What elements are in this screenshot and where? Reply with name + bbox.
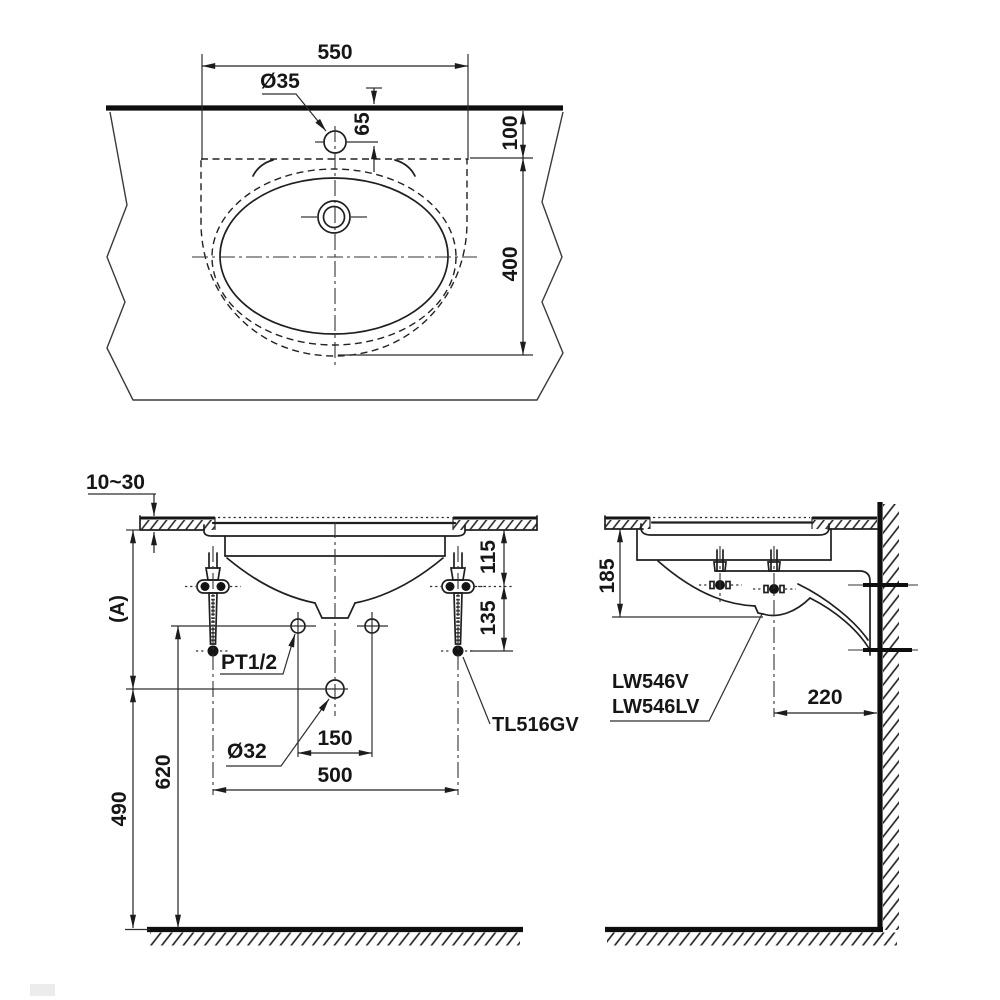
floor-hatch [607,933,897,946]
label-model-1: LW546V [612,671,689,693]
bracket-curve-bottom [810,598,870,650]
dim-400: 400 [499,246,522,281]
dim-counter-thickness: 10~30 [86,471,145,494]
left-overflow-notch [253,160,273,176]
label-model-2: LW546LV [612,696,700,718]
dim-500: 500 [317,764,352,787]
valve-port-left [446,582,455,591]
right-valve [430,546,486,795]
bowl-underside-rear [763,598,810,616]
drain-dip [755,606,763,614]
dim-115: 115 [477,540,500,574]
floor-hatch [150,933,520,946]
counter-hatch-right [812,520,877,529]
dim-A: (A) [107,595,129,623]
bowl-underside [658,561,755,606]
dim-550: 550 [317,41,352,64]
hanger-rail [716,571,870,655]
drain-inner-circle [324,207,345,228]
dim-620: 620 [152,754,175,789]
dim-490: 490 [108,791,131,826]
label-drain-dia: Ø32 [227,740,267,763]
label-supply-thread: PT1/2 [221,651,277,674]
counter-hatch-left [605,520,650,529]
right-overflow-notch [395,160,415,176]
dim-150: 150 [317,727,352,750]
wall-hatch [883,504,899,930]
valve-port-right [217,582,226,591]
front-view: 10~30 (A) 490 620 PT1/2 Ø32 150 500 115 … [86,471,579,946]
bowl-underside-right [355,558,443,603]
scan-artifact [30,984,55,996]
top-view: 550 Ø35 65 100 400 [106,41,563,400]
label-valve-model: TL516GV [492,714,579,736]
dim-220: 220 [807,686,842,709]
lavatory-installation-drawing: 550 Ø35 65 100 400 [0,0,1000,1000]
leader-faucet-dia [262,94,326,131]
valve-port-left [201,582,210,591]
dim-65: 65 [351,112,374,136]
drawing-page: 550 Ø35 65 100 400 [0,0,1000,1000]
valve-port-right [462,582,471,591]
dim-100: 100 [499,115,522,150]
basin-flange [641,524,829,535]
leader-valve-model [463,657,490,724]
bowl-underside-left [227,558,315,603]
dim-185: 185 [596,558,619,593]
label-faucet-dia: Ø35 [260,70,300,93]
dim-135: 135 [477,600,500,635]
side-view: 185 LW546V LW546LV 220 [596,502,920,946]
